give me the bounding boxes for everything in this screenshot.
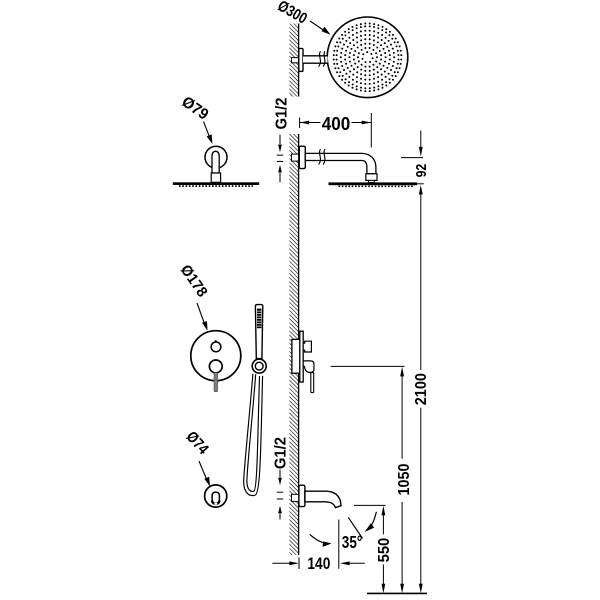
svg-text:140: 140 — [307, 554, 330, 573]
svg-text:2100: 2100 — [413, 373, 430, 405]
svg-text:550: 550 — [376, 538, 393, 563]
svg-text:1050: 1050 — [396, 464, 413, 496]
svg-text:400: 400 — [322, 114, 351, 134]
svg-text:G1/2: G1/2 — [273, 437, 290, 469]
svg-text:G1/2: G1/2 — [274, 97, 291, 129]
svg-text:Ø79: Ø79 — [178, 93, 211, 123]
svg-text:92: 92 — [413, 164, 430, 177]
svg-text:Ø74: Ø74 — [183, 428, 212, 458]
svg-text:35°: 35° — [342, 532, 363, 552]
svg-text:Ø178: Ø178 — [177, 262, 211, 300]
